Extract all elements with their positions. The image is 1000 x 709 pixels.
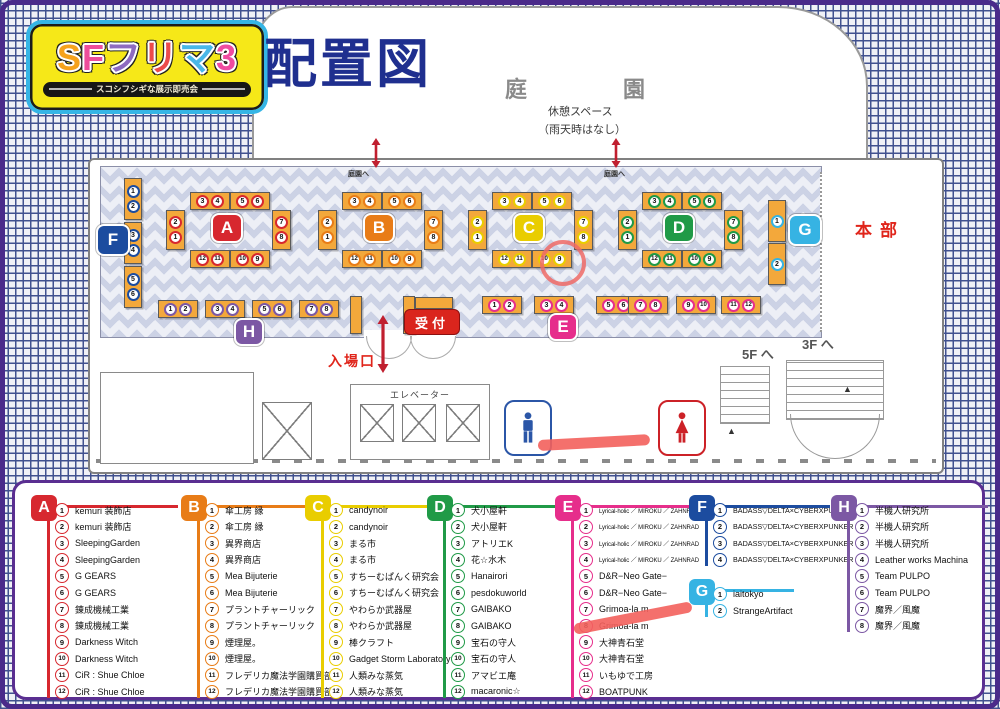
legend-item: 7魔界／風魔 — [855, 601, 968, 618]
item-text: 犬小屋軒 — [471, 504, 507, 517]
item-text: 煙理屋。 — [225, 652, 261, 665]
booth-number: 12 — [742, 299, 755, 312]
legend-item: 2Lyrical-holic ／ MIROKU ／ ZAHNRAD — [579, 519, 699, 536]
booth-table: 78 — [272, 210, 291, 250]
booth-number: 6 — [329, 586, 343, 600]
booth-table: 34 — [205, 300, 245, 318]
booth-number: 8 — [55, 619, 69, 633]
booth-number: 4 — [329, 553, 343, 567]
rest-space-note: 休憩スペース — [548, 103, 613, 119]
legend-item: 9Darkness Witch — [55, 634, 145, 651]
booth-number: 6 — [451, 586, 465, 600]
booth-number: 5 — [388, 195, 401, 208]
section-label-F: F — [98, 226, 128, 254]
legend-header-G: G — [689, 579, 715, 605]
booth-number: 11 — [55, 668, 69, 682]
legend-panel: A1kemuri 装飾店2kemuri 装飾店3SleepingGarden4S… — [12, 480, 985, 700]
legend-item: 4花☆水木 — [451, 552, 527, 569]
legend-item: 12macaronic☆ — [451, 684, 527, 701]
booth-number: 6 — [553, 195, 566, 208]
booth-number: 10 — [451, 652, 465, 666]
legend-item: 7錬成機械工業 — [55, 601, 145, 618]
legend-item: 8プラントチャーリック — [205, 618, 333, 635]
legend-item: 9棒クラフト — [329, 634, 451, 651]
booth-table: 56 — [532, 192, 572, 210]
booth-table — [350, 296, 362, 334]
booth-number: 7 — [427, 216, 440, 229]
booth-number: 9 — [682, 299, 695, 312]
booth-number: 5 — [602, 299, 615, 312]
booth-table: 56 — [252, 300, 292, 318]
elevator-shaft — [360, 404, 394, 442]
stairs-up-arrow-icon: ▲ — [727, 426, 736, 436]
booth-number: 12 — [55, 685, 69, 699]
legend-item: 5Mea Bijuterie — [205, 568, 333, 585]
item-text: Lyrical-holic ／ MIROKU ／ ZAHNRAD — [599, 539, 699, 548]
stairs-3f — [786, 360, 884, 420]
womens-restroom-icon — [671, 412, 693, 444]
item-text: BADASS▽DELTA×CYBERXPUNKER — [733, 555, 854, 564]
booth-number: 4 — [451, 553, 465, 567]
legend-item: 4異界商店 — [205, 552, 333, 569]
legend-vline — [197, 520, 200, 698]
booth-table: 1211 — [342, 250, 382, 268]
item-text: G GEARS — [75, 588, 116, 598]
booth-number: 3 — [498, 195, 511, 208]
legend-item: 6pesdokuworld — [451, 585, 527, 602]
legend-item: 3まる市 — [329, 535, 451, 552]
booth-number: 1 — [488, 299, 501, 312]
event-logo-subtitle: スコシフシギな展示即売会 — [43, 82, 251, 97]
to-garden-label: 庭園へ — [348, 169, 369, 179]
booth-number: 10 — [55, 652, 69, 666]
legend-vline — [705, 520, 708, 566]
item-text: やわらか武器屋 — [349, 603, 412, 616]
booth-number: 10 — [697, 299, 710, 312]
booth-table: 910 — [676, 296, 716, 314]
legend-header-B: B — [181, 495, 207, 521]
booth-number: 7 — [855, 602, 869, 616]
booth-table: 34 — [534, 296, 574, 314]
booth-number: 3 — [713, 536, 727, 550]
booth-number: 1 — [471, 231, 484, 244]
legend-vline — [571, 520, 574, 698]
booth-number: 1 — [205, 503, 219, 517]
booth-number: 6 — [579, 586, 593, 600]
event-logo: SFフリマ3 スコシフシギな展示即売会 — [26, 20, 268, 114]
item-text: Mea Bijuterie — [225, 588, 278, 598]
booth-table: 21 — [468, 210, 487, 250]
booth-number: 3 — [451, 536, 465, 550]
mens-restroom-icon — [518, 412, 538, 444]
garden-exit-arrow-icon — [610, 138, 622, 168]
booth-number: 5 — [855, 569, 869, 583]
item-text: 半機人研究所 — [875, 537, 929, 550]
booth-table: 1 — [768, 200, 786, 242]
legend-item: 8やわらか武器屋 — [329, 618, 451, 635]
legend-item: 3半機人研究所 — [855, 535, 968, 552]
booth-number: 2 — [205, 520, 219, 534]
booth-number: 6 — [55, 586, 69, 600]
legend-item: 12人類みな蒸気 — [329, 684, 451, 701]
booth-number: 4 — [205, 553, 219, 567]
booth-number: 3 — [205, 536, 219, 550]
booth-table: 78 — [628, 296, 668, 314]
booth-number: 2 — [329, 520, 343, 534]
booth-number: 8 — [649, 299, 662, 312]
booth-number: 5 — [258, 303, 271, 316]
booth-number: 1 — [713, 503, 727, 517]
item-text: Leather works Machina — [875, 555, 968, 565]
booth-number: 2 — [503, 299, 516, 312]
booth-number: 9 — [451, 635, 465, 649]
legend-item: 12フレデリカ魔法学園購買部 — [205, 684, 333, 701]
section-label-A: A — [213, 215, 241, 241]
booth-number: 7 — [579, 602, 593, 616]
booth-number: 11 — [727, 299, 740, 312]
booth-number: 1 — [855, 503, 869, 517]
island-A: 345621781211109A — [166, 192, 290, 268]
item-text: BADASS▽DELTA×CYBERXPUNKER — [733, 539, 854, 548]
booth-table: 78 — [299, 300, 339, 318]
item-text: 大神青石堂 — [599, 652, 644, 665]
booth-number: 7 — [577, 216, 590, 229]
item-text: SleepingGarden — [75, 538, 140, 548]
item-text: Lyrical-holic ／ MIROKU ／ ZAHNRAD — [599, 555, 699, 564]
legend-item: 9宝石の守人 — [451, 634, 527, 651]
booth-table: 56 — [230, 192, 270, 210]
booth-table: 2 — [768, 243, 786, 285]
legend-item: 1半機人研究所 — [855, 502, 968, 519]
booth-number: 12 — [205, 685, 219, 699]
legend-item: 5D&R−Neo Gate− — [579, 568, 699, 585]
booth-number: 3 — [648, 195, 661, 208]
elevator-shaft — [402, 404, 436, 442]
booth-number: 5 — [205, 569, 219, 583]
item-text: BADASS▽DELTA×CYBERXPUNKER — [733, 522, 854, 531]
booth-number: 4 — [127, 244, 140, 257]
booth-number: 1 — [321, 231, 334, 244]
booth-number: 12 — [348, 253, 361, 266]
item-text: 花☆水木 — [471, 553, 506, 566]
item-text: 傘工房 縁 — [225, 520, 264, 533]
booth-number: 2 — [179, 303, 192, 316]
booth-table: 1211 — [492, 250, 532, 268]
legend-header-H: H — [831, 495, 857, 521]
item-text: Gadget Storm Laboratory — [349, 654, 451, 664]
booth-number: 2 — [55, 520, 69, 534]
item-text: CiR : Shue Chloe — [75, 670, 145, 680]
logo-letter: 3 — [216, 37, 237, 78]
booth-table: 109 — [382, 250, 422, 268]
booth-number: 3 — [855, 536, 869, 550]
legend-item: 10Darkness Witch — [55, 651, 145, 668]
booth-number: 11 — [451, 668, 465, 682]
item-text: Lyrical-holic ／ MIROKU ／ ZAHNRAD — [599, 522, 699, 531]
legend-item: 9大神青石堂 — [579, 634, 699, 651]
booth-number: 2 — [713, 604, 727, 618]
item-text: 人類みな蒸気 — [349, 685, 403, 698]
legend-vline — [705, 604, 708, 617]
legend-item: 11フレデリカ魔法学園購買部 — [205, 667, 333, 684]
item-text: iaitokyo — [733, 589, 764, 599]
legend-item: 6G GEARS — [55, 585, 145, 602]
booth-number: 10 — [205, 652, 219, 666]
item-text: フレデリカ魔法学園購買部 — [225, 669, 333, 682]
legend-item: 8GAIBAKO — [451, 618, 527, 635]
island-B: 345621781211109B — [318, 192, 442, 268]
booth-number: 7 — [55, 602, 69, 616]
booth-number: 5 — [688, 195, 701, 208]
garden-title: 庭 園 — [505, 72, 645, 104]
booth-number: 4 — [855, 553, 869, 567]
booth-number: 4 — [513, 195, 526, 208]
reception-label: 受付 — [404, 309, 460, 335]
booth-number: 2 — [771, 258, 784, 271]
booth-number: 8 — [577, 231, 590, 244]
booth-table: 21 — [318, 210, 337, 250]
legend-item: 11アマビエ庵 — [451, 667, 527, 684]
item-text: GAIBAKO — [471, 621, 512, 631]
booth-number: 8 — [329, 619, 343, 633]
booth-number: 1 — [164, 303, 177, 316]
item-text: Lyrical-holic ／ MIROKU ／ ZAHNRAD — [599, 506, 699, 515]
booth-number: 3 — [196, 195, 209, 208]
logo-letter: マ — [179, 37, 216, 78]
legend-header-D: D — [427, 495, 453, 521]
booth-table: 21 — [618, 210, 637, 250]
item-text: GAIBAKO — [471, 604, 512, 614]
booth-table: 56 — [124, 266, 142, 308]
booth-number: 12 — [498, 253, 511, 266]
item-text: CiR : Shue Chloe — [75, 687, 145, 697]
booth-number: 10 — [688, 253, 701, 266]
legend-item: 5すちーむぱんく研究会 — [329, 568, 451, 585]
booth-number: 5 — [127, 273, 140, 286]
booth-number: 11 — [663, 253, 676, 266]
booth-number: 7 — [634, 299, 647, 312]
booth-number: 1 — [55, 503, 69, 517]
legend-item: 1犬小屋軒 — [451, 502, 527, 519]
legend-item: 10大神青石堂 — [579, 651, 699, 668]
booth-number: 9 — [579, 635, 593, 649]
booth-number: 10 — [236, 253, 249, 266]
booth-number: 1 — [771, 215, 784, 228]
booth-table: 109 — [682, 250, 722, 268]
booth-number: 4 — [363, 195, 376, 208]
booth-number: 8 — [727, 231, 740, 244]
to-garden-label: 庭園へ — [604, 169, 625, 179]
stairs-5f-label: 5F へ — [742, 344, 774, 363]
booth-number: 5 — [451, 569, 465, 583]
stairs-3f-label: 3F へ — [802, 334, 834, 353]
booth-number: 6 — [205, 586, 219, 600]
legend-item: 2犬小屋軒 — [451, 519, 527, 536]
womens-restroom — [658, 400, 706, 456]
item-text: D&R−Neo Gate− — [599, 571, 667, 581]
booth-number: 1 — [713, 587, 727, 601]
booth-number: 2 — [451, 520, 465, 534]
legend-item: 6D&R−Neo Gate− — [579, 585, 699, 602]
subtitle-dash — [202, 88, 245, 90]
booth-number: 1 — [621, 231, 634, 244]
item-text: プラントチャーリック — [225, 619, 315, 632]
legend-item: 3BADASS▽DELTA×CYBERXPUNKER — [713, 535, 854, 552]
item-text: 半機人研究所 — [875, 520, 929, 533]
legend-item: 7プラントチャーリック — [205, 601, 333, 618]
booth-table: 34 — [642, 192, 682, 210]
item-text: 錬成機械工業 — [75, 619, 129, 632]
item-text: pesdokuworld — [471, 588, 527, 598]
legend-item: 11人類みな蒸気 — [329, 667, 451, 684]
legend-item: 2BADASS▽DELTA×CYBERXPUNKER — [713, 519, 854, 536]
legend-header-E: E — [555, 495, 581, 521]
legend-item-list: 1candynoir2candynoir3まる市4まる市5すちーむぱんく研究会6… — [329, 502, 451, 700]
hq-label: 本部 — [828, 216, 932, 241]
booth-number: 11 — [211, 253, 224, 266]
legend-item: 10宝石の守人 — [451, 651, 527, 668]
booth-number: 1 — [329, 503, 343, 517]
booth-number: 9 — [205, 635, 219, 649]
booth-number: 3 — [329, 536, 343, 550]
item-text: macaronic☆ — [471, 686, 521, 697]
legend-item: 4まる市 — [329, 552, 451, 569]
booth-number: 10 — [579, 652, 593, 666]
booth-number: 1 — [451, 503, 465, 517]
item-text: フレデリカ魔法学園購買部 — [225, 685, 333, 698]
booth-number: 8 — [320, 303, 333, 316]
booth-number: 9 — [703, 253, 716, 266]
item-text: プラントチャーリック — [225, 603, 315, 616]
booth-number: 6 — [855, 586, 869, 600]
legend-item: 6Mea Bijuterie — [205, 585, 333, 602]
booth-number: 3 — [540, 299, 553, 312]
marker-circle-booth-c9 — [540, 240, 586, 286]
item-text: 魔界／風魔 — [875, 619, 920, 632]
logo-letter: F — [82, 37, 105, 78]
booth-table: 12 — [482, 296, 522, 314]
booth-number: 8 — [855, 619, 869, 633]
booth-number: 8 — [275, 231, 288, 244]
legend-item: 7やわらか武器屋 — [329, 601, 451, 618]
section-label-G: G — [790, 216, 820, 244]
booth-number: 7 — [727, 216, 740, 229]
booth-number: 7 — [205, 602, 219, 616]
page-title: 配置図 — [264, 22, 432, 98]
legend-item: 12BOATPUNK — [579, 684, 699, 701]
logo-letter: リ — [142, 37, 179, 78]
legend-item-list: 1犬小屋軒2犬小屋軒3アトリエK4花☆水木5Hanairori6pesdokuw… — [451, 502, 527, 700]
legend-item-list: 1Lyrical-holic ／ MIROKU ／ ZAHNRAD2Lyrica… — [579, 502, 699, 700]
booth-number: 6 — [703, 195, 716, 208]
booth-number: 6 — [127, 288, 140, 301]
legend-item: 11いもゆで工房 — [579, 667, 699, 684]
item-text: D&R−Neo Gate− — [599, 588, 667, 598]
legend-item: 10煙理屋。 — [205, 651, 333, 668]
booth-number: 6 — [251, 195, 264, 208]
event-logo-title: SFフリマ3 — [57, 40, 237, 76]
booth-number: 8 — [451, 619, 465, 633]
legend-item-list: 1半機人研究所2半機人研究所3半機人研究所4Leather works Mach… — [855, 502, 968, 634]
hq-room — [820, 172, 938, 332]
booth-number: 4 — [226, 303, 239, 316]
item-text: Team PULPO — [875, 588, 930, 598]
booth-number: 11 — [513, 253, 526, 266]
item-text: StrangeArtifact — [733, 606, 793, 616]
legend-item: 2半機人研究所 — [855, 519, 968, 536]
booth-table: 12 — [158, 300, 198, 318]
booth-table: 34 — [492, 192, 532, 210]
booth-number: 4 — [663, 195, 676, 208]
item-text: アマビエ庵 — [471, 669, 516, 682]
booth-number: 7 — [451, 602, 465, 616]
item-text: BOATPUNK — [599, 687, 648, 697]
legend-item: 6Team PULPO — [855, 585, 968, 602]
legend-item: 4Leather works Machina — [855, 552, 968, 569]
legend-item: 1kemuri 装飾店 — [55, 502, 145, 519]
legend-item: 3SleepingGarden — [55, 535, 145, 552]
booth-number: 5 — [236, 195, 249, 208]
item-text: 錬成機械工業 — [75, 603, 129, 616]
booth-table: 56 — [382, 192, 422, 210]
booth-table: 78 — [724, 210, 743, 250]
legend-item: 5Hanairori — [451, 568, 527, 585]
legend-item: 11CiR : Shue Chloe — [55, 667, 145, 684]
booth-number: 3 — [211, 303, 224, 316]
legend-item: 4BADASS▽DELTA×CYBERXPUNKER — [713, 552, 854, 569]
legend-header-F: F — [689, 495, 715, 521]
section-label-H: H — [236, 320, 262, 344]
item-text: やわらか武器屋 — [349, 619, 412, 632]
booth-number: 12 — [196, 253, 209, 266]
legend-item: 8錬成機械工業 — [55, 618, 145, 635]
booth-number: 11 — [205, 668, 219, 682]
booth-number: 11 — [579, 668, 593, 682]
legend-vline — [443, 520, 446, 698]
stairs-5f — [720, 366, 770, 424]
item-text: Darkness Witch — [75, 637, 138, 647]
item-text: Darkness Witch — [75, 654, 138, 664]
legend-item: 7GAIBAKO — [451, 601, 527, 618]
booth-number: 2 — [855, 520, 869, 534]
booth-table: 78 — [424, 210, 443, 250]
item-text: すちーむぱんく研究会 — [349, 586, 439, 599]
legend-item: 9煙理屋。 — [205, 634, 333, 651]
subtitle-dash — [49, 88, 92, 90]
item-text: candynoir — [349, 522, 388, 532]
item-text: 魔界／風魔 — [875, 603, 920, 616]
item-text: 宝石の守人 — [471, 636, 516, 649]
booth-number: 4 — [211, 195, 224, 208]
legend-item: 8魔界／風魔 — [855, 618, 968, 635]
booth-number: 12 — [579, 685, 593, 699]
booth-table: 12 — [124, 178, 142, 220]
item-text: 大神青石堂 — [599, 636, 644, 649]
booth-table: 21 — [166, 210, 185, 250]
booth-number: 7 — [329, 602, 343, 616]
entrance-label: 入場口 — [328, 351, 376, 371]
booth-table: 1211 — [642, 250, 682, 268]
booth-number: 12 — [451, 685, 465, 699]
legend-item: 4SleepingGarden — [55, 552, 145, 569]
booth-number: 7 — [305, 303, 318, 316]
booth-number: 12 — [329, 685, 343, 699]
item-text: Mea Bijuterie — [225, 571, 278, 581]
booth-number: 3 — [348, 195, 361, 208]
booth-number: 5 — [538, 195, 551, 208]
section-label-D: D — [665, 215, 693, 241]
booth-table: 109 — [230, 250, 270, 268]
